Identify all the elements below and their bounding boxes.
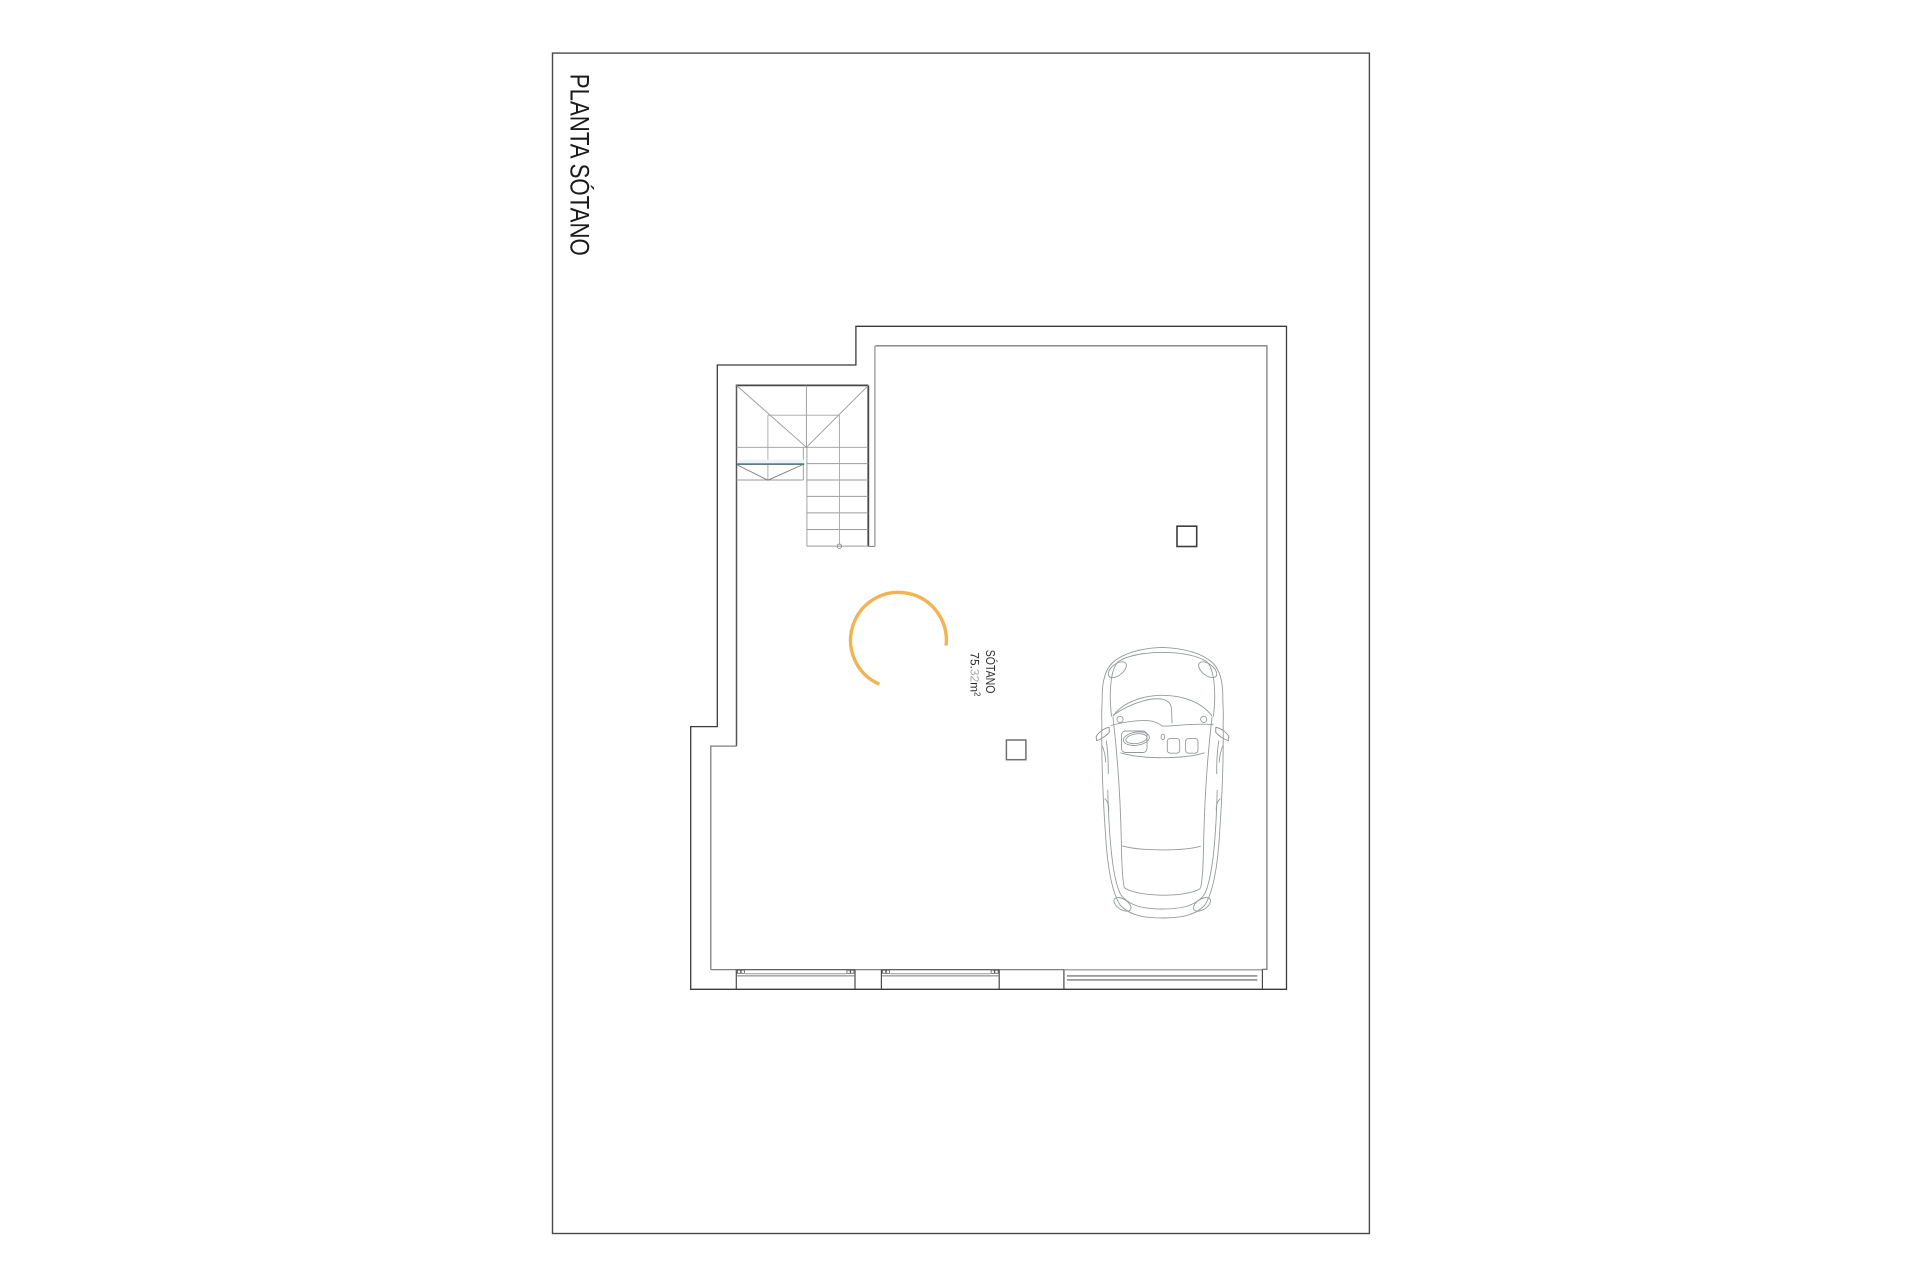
svg-text:PLANTA SÓTANO: PLANTA SÓTANO: [565, 74, 596, 256]
svg-text:75.32m2: 75.32m2: [968, 652, 982, 697]
svg-text:SÓTANO: SÓTANO: [983, 650, 998, 694]
